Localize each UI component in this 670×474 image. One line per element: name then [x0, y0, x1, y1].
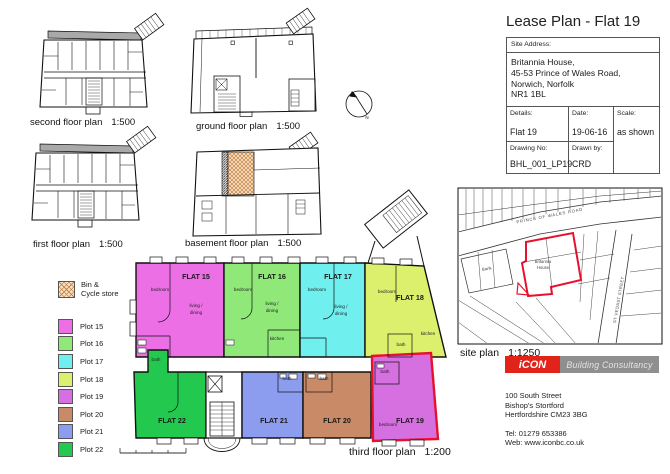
firm-tel: Tel: 01279 653386	[505, 429, 588, 439]
legend-plot-19: Plot 19	[58, 388, 119, 406]
sheet-title: Lease Plan - Flat 19	[506, 13, 660, 30]
building-label-2: House	[537, 265, 550, 270]
flat-15-label: FLAT 15	[182, 272, 210, 281]
caption-third-floor: third floor plan1:200	[349, 446, 451, 458]
plot-21-swatch	[58, 424, 73, 439]
flat-21-label: FLAT 21	[260, 416, 288, 425]
flat-18-label: FLAT 18	[396, 293, 424, 302]
legend-plot-18: Plot 18	[58, 370, 119, 388]
caption-ground-floor: ground floor plan1:500	[196, 121, 300, 132]
svg-text:dining: dining	[190, 310, 203, 315]
flat-15-area	[136, 263, 224, 357]
flat-20-label: FLAT 20	[323, 416, 351, 425]
plot-20-swatch	[58, 407, 73, 422]
svg-text:kitchen: kitchen	[270, 336, 285, 341]
svg-text:bedroom: bedroom	[151, 287, 169, 292]
svg-text:bath: bath	[381, 369, 390, 374]
date-cell: Date: 19-06-16	[569, 107, 614, 141]
drawn-by-cell: Drawn by: CRD	[569, 141, 614, 173]
building-label-1: Britannia	[535, 259, 552, 264]
details-cell: Details: Flat 19	[507, 107, 569, 141]
flat-19-label: FLAT 19	[396, 416, 424, 425]
site-address: Britannia House, 45-53 Prince of Wales R…	[507, 53, 659, 107]
scale-bar	[120, 448, 186, 453]
svg-text:bath: bath	[320, 376, 329, 381]
lease-plan-sheet: N	[0, 0, 670, 474]
plot-19-swatch	[58, 389, 73, 404]
svg-text:bedroom: bedroom	[308, 287, 326, 292]
second-floor-plan	[40, 13, 164, 114]
site-address-label: Site Address:	[507, 38, 659, 53]
north-label: N	[365, 115, 368, 120]
flat-18-area	[365, 263, 446, 357]
scale-cell: Scale: as shown	[614, 107, 659, 173]
stair-tower	[365, 190, 428, 266]
svg-text:bedroom: bedroom	[379, 422, 397, 427]
svg-text:bedroom: bedroom	[234, 287, 252, 292]
site-plan-map: PRINCE OF WALES ROAD ST VEDAST STREET Br…	[458, 188, 662, 344]
icon-logo: iCON Building Consultancy	[505, 356, 659, 373]
flat-17-label: FLAT 17	[324, 272, 352, 281]
flat-20-area	[303, 372, 371, 438]
plot-16-swatch	[58, 336, 73, 351]
bin-store-swatch	[58, 281, 75, 298]
flat-22-label: FLAT 22	[158, 416, 186, 425]
first-floor-plan	[32, 126, 156, 227]
plot-15-swatch	[58, 319, 73, 334]
firm-web: Web: www.iconbc.co.uk	[505, 438, 588, 448]
flat-16-label: FLAT 16	[258, 272, 286, 281]
svg-text:bath: bath	[397, 342, 406, 347]
caption-second-floor: second floor plan1:500	[30, 117, 135, 128]
logo-mark: iCON	[505, 356, 560, 373]
legend-plot-20: Plot 20	[58, 406, 119, 424]
firm-details: 100 South Street Bishop's Stortford Hert…	[505, 391, 588, 448]
legend-plot-21: Plot 21	[58, 423, 119, 441]
legend-plot-15: Plot 15	[58, 318, 119, 336]
legend-plot-22: Plot 22	[58, 441, 119, 459]
svg-text:dining: dining	[266, 308, 279, 313]
north-arrow-icon: N	[346, 91, 372, 120]
caption-basement-floor: basement floor plan1:500	[185, 238, 301, 249]
drawing-no-cell: Drawing No: BHL_001_LP19	[507, 141, 569, 173]
logo-text: Building Consultancy	[560, 356, 659, 373]
stair-core	[206, 372, 242, 438]
flat-21-area	[242, 372, 303, 438]
plot-17-swatch	[58, 354, 73, 369]
svg-text:living /: living /	[189, 303, 203, 308]
svg-text:bedroom: bedroom	[378, 289, 396, 294]
svg-text:dining: dining	[335, 311, 348, 316]
legend-plot-16: Plot 16	[58, 335, 119, 353]
basement-floor-plan	[193, 132, 321, 236]
title-block: Lease Plan - Flat 19 Site Address: Brita…	[506, 13, 660, 174]
svg-text:kitchen: kitchen	[421, 331, 436, 336]
plot-18-swatch	[58, 372, 73, 387]
svg-text:living /: living /	[265, 301, 279, 306]
svg-text:living /: living /	[334, 304, 348, 309]
plot-22-swatch	[58, 442, 73, 457]
legend-bin-cycle-store: Bin & Cycle store	[58, 281, 119, 299]
ground-floor-plan	[191, 8, 316, 116]
legend-plot-17: Plot 17	[58, 353, 119, 371]
svg-text:bath: bath	[283, 376, 292, 381]
svg-text:bath: bath	[152, 357, 161, 362]
legend: Bin & Cycle store Plot 15 Plot 16 Plot 1…	[58, 281, 119, 458]
caption-first-floor: first floor plan1:500	[33, 239, 123, 250]
